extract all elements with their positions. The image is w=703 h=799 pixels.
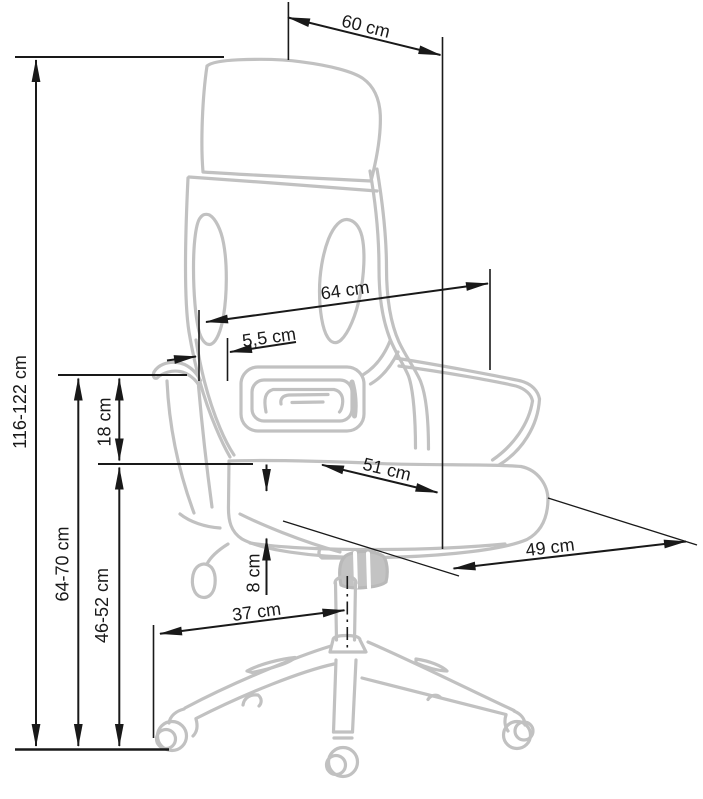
svg-text:8 cm: 8 cm [243,553,263,592]
svg-text:116-122 cm: 116-122 cm [10,355,30,449]
svg-text:46-52 cm: 46-52 cm [92,568,112,643]
svg-text:64-70 cm: 64-70 cm [52,526,72,601]
svg-text:18 cm: 18 cm [94,397,114,446]
